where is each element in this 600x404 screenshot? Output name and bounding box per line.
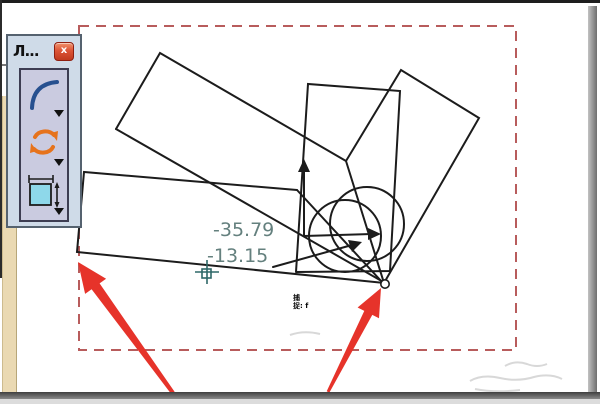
- rotation-arrow-line: [273, 245, 352, 267]
- chevron-down-icon[interactable]: [54, 159, 64, 166]
- sketch-rect-topleft: [116, 53, 346, 161]
- frame-shadow-right: [588, 6, 597, 398]
- frame-border-top: [0, 0, 600, 3]
- coord-readout-y: -13.15: [207, 245, 268, 267]
- frame-border-left: [0, 0, 2, 278]
- tool-panel: [19, 68, 69, 222]
- rect-dimension-tool-button[interactable]: [22, 169, 66, 217]
- cad-app-window: -35.79 -13.15 捕 捉: f Л... x: [0, 0, 600, 404]
- x-axis-arrow-line: [304, 234, 372, 236]
- snap-point-marker[interactable]: [381, 280, 389, 288]
- tool-palette-window: Л... x: [6, 34, 82, 228]
- arc-tool-button[interactable]: [22, 71, 66, 119]
- rotate-icon: [25, 123, 63, 163]
- palette-title-glyph: Л...: [13, 44, 39, 59]
- chevron-down-icon[interactable]: [54, 208, 64, 215]
- close-icon[interactable]: x: [54, 42, 74, 61]
- chevron-down-icon[interactable]: [54, 110, 64, 117]
- annotation-arrows: [78, 262, 381, 394]
- frame-shadow-bottom: [0, 392, 600, 399]
- watermark-scribble: [290, 332, 562, 391]
- frame-shadow-fade: [0, 399, 600, 404]
- red-arrow-right-icon: [327, 288, 381, 393]
- coord-readout-x: -35.79: [213, 219, 274, 241]
- y-axis-arrowhead-icon: [298, 159, 310, 172]
- drawing-canvas[interactable]: [0, 0, 600, 404]
- rotation-arrowhead-icon: [348, 240, 362, 252]
- rotate-tool-button[interactable]: [22, 120, 66, 168]
- snap-hint-label: 捕 捉: f: [293, 294, 308, 310]
- arc-icon: [25, 74, 63, 114]
- palette-titlebar[interactable]: Л... x: [8, 36, 80, 66]
- red-arrow-left-icon: [78, 262, 175, 394]
- sketch-geometry[interactable]: [77, 53, 479, 283]
- x-axis-arrowhead-icon: [368, 228, 381, 240]
- sketch-rect-right: [346, 70, 479, 283]
